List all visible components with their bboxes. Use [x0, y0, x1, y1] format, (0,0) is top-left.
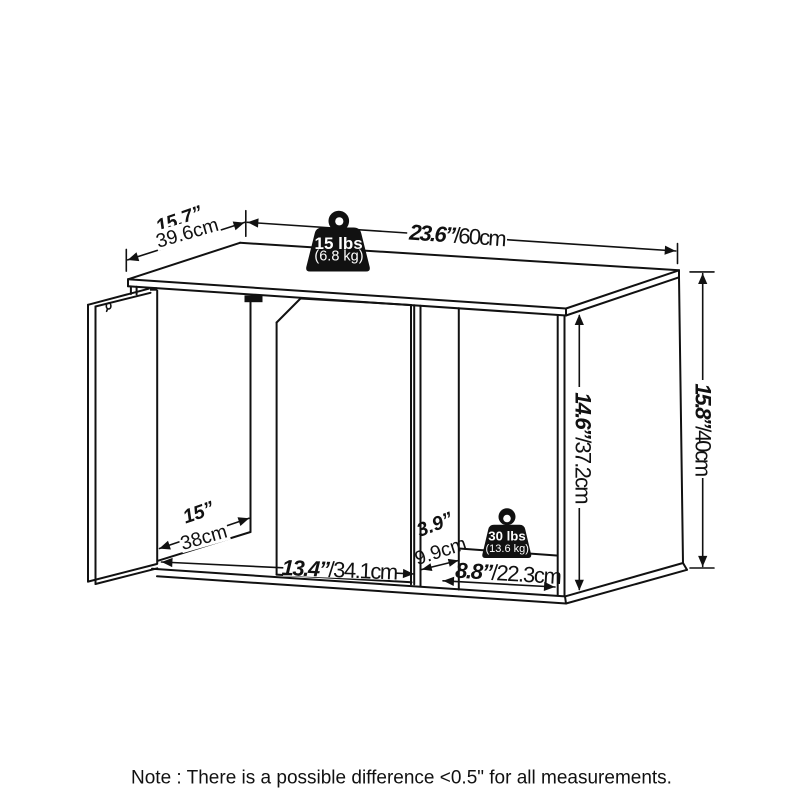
- svg-text:30 lbs: 30 lbs: [488, 529, 525, 544]
- svg-text:(13.6 kg): (13.6 kg): [485, 543, 528, 555]
- svg-text:14.6”/37.2cm: 14.6”/37.2cm: [570, 392, 595, 503]
- svg-text:13.4”/34.1cm: 13.4”/34.1cm: [281, 555, 397, 585]
- svg-text:(6.8 kg): (6.8 kg): [314, 249, 363, 265]
- svg-text:15.8”/40cm: 15.8”/40cm: [691, 383, 716, 476]
- svg-text:Note : There is a possible dif: Note : There is a possible difference <0…: [131, 768, 672, 789]
